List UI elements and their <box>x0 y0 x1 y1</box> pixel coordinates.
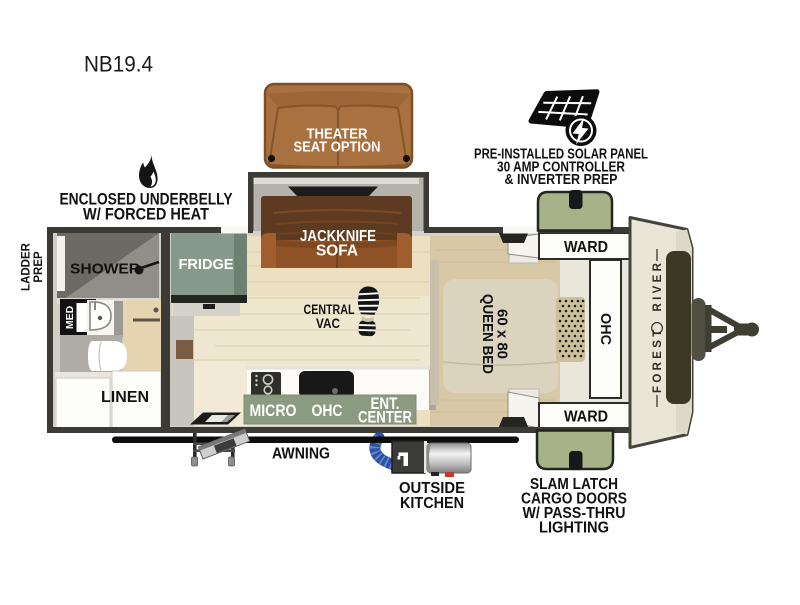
svg-text:LINEN: LINEN <box>101 389 149 406</box>
svg-text:SEAT OPTION: SEAT OPTION <box>294 140 381 156</box>
svg-text:LIGHTING: LIGHTING <box>539 520 609 537</box>
svg-text:SOFA: SOFA <box>316 243 358 260</box>
svg-text:W/ FORCED HEAT: W/ FORCED HEAT <box>83 206 209 224</box>
svg-text:CENTER: CENTER <box>358 408 412 427</box>
svg-text:SHOWER: SHOWER <box>70 261 140 278</box>
svg-text:LADDER: LADDER <box>21 242 33 291</box>
svg-text:WARD: WARD <box>564 409 608 426</box>
svg-text:WARD: WARD <box>564 239 608 256</box>
svg-text:NB19.4: NB19.4 <box>84 52 153 77</box>
svg-text:QUEEN BED: QUEEN BED <box>479 294 495 374</box>
svg-text:PREP: PREP <box>33 251 45 283</box>
svg-text:MED: MED <box>64 305 76 329</box>
svg-text:MICRO: MICRO <box>250 401 297 420</box>
svg-text:OHC: OHC <box>312 401 343 420</box>
svg-text:VAC: VAC <box>316 315 340 331</box>
svg-text:AWNING: AWNING <box>272 446 330 463</box>
svg-text:& INVERTER PREP: & INVERTER PREP <box>505 172 618 188</box>
svg-text:KITCHEN: KITCHEN <box>400 495 464 512</box>
svg-text:OHC: OHC <box>597 313 614 345</box>
svg-text:FRIDGE: FRIDGE <box>179 256 234 273</box>
